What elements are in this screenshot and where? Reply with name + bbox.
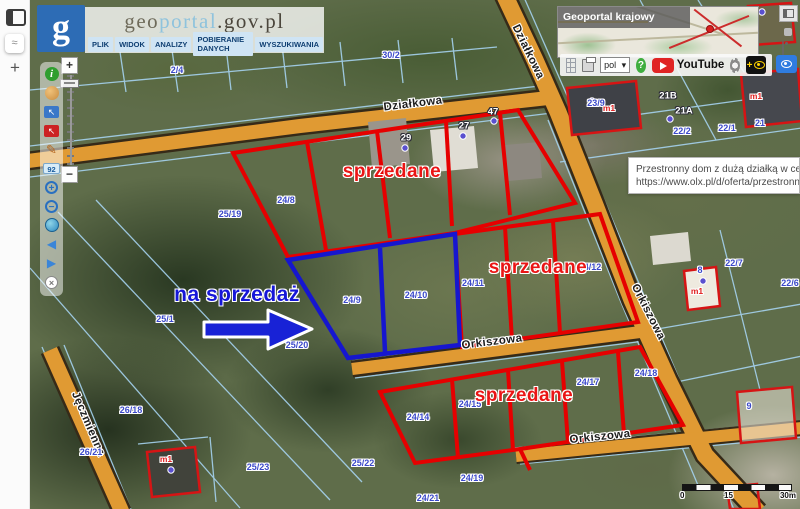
browser-side-rail: ≈ + [0,0,30,509]
menu-item[interactable]: POBIERANIE DANYCH [193,32,253,56]
page-title: geoportal.gov.pl [85,7,324,35]
scale-bar-segments [682,484,792,491]
info-button[interactable]: i [43,66,60,83]
reset-button[interactable]: × [43,274,60,291]
overview-minimap[interactable]: Geoportal krajowy [557,6,759,58]
previous-view-button[interactable]: ◀ [43,236,60,253]
scale-mid: 15 [724,491,733,500]
geoportal-logo[interactable]: g [37,5,85,52]
contrast-eye-icon [754,61,765,69]
chevron-down-icon: ▾ [622,60,627,71]
zoom-out-button[interactable]: − [43,198,60,215]
minimap-marker [706,25,714,33]
scale-bar: 0 15 30m [682,484,792,501]
layer-visibility-button[interactable] [776,55,797,73]
print-icon[interactable] [582,59,594,72]
settings-gear-icon[interactable] [730,58,740,73]
pan-button[interactable] [43,85,60,102]
title-portal: portal [159,9,217,33]
pencil-icon: ✎ [46,142,57,157]
new-tab-button[interactable]: + [7,60,23,76]
zoom-slider-plus[interactable]: + [61,57,78,74]
arrow-left-icon: ◀ [47,237,56,251]
eye-icon [781,60,792,68]
full-extent-button[interactable] [43,217,60,234]
pan-icon [45,86,59,100]
menu-item[interactable]: WYSZUKIWANIA [255,37,323,52]
measure-button[interactable]: ✎ [43,141,60,158]
top-toolbar: pol ▾ ? YouTube + [560,54,772,76]
zoom-in-icon: + [45,181,58,194]
info-icon: i [45,67,59,81]
clear-selection-button[interactable]: ↖ [43,123,60,140]
select-red-icon: ↖ [44,125,59,137]
close-icon: × [45,276,58,289]
zoom-out-icon: − [45,200,58,213]
extension-icon[interactable]: ≈ [5,34,24,53]
youtube-link[interactable]: YouTube [652,58,724,73]
coords-icon: 92 [43,163,60,174]
language-value: pol [604,60,616,70]
select-blue-icon: ↖ [44,106,59,118]
youtube-label: YouTube [677,59,724,71]
geoportal-app: DziałkowaDziałkowaOrkiszowaOrkiszowaOrki… [0,0,800,509]
menu-item[interactable]: PLIK [88,37,113,52]
help-button[interactable]: ? [636,58,646,73]
title-suffix: .gov.pl [217,9,284,33]
map-canvas[interactable] [0,0,800,509]
globe-icon [45,218,59,232]
zoom-in-button[interactable]: + [43,179,60,196]
coordinate-system-button[interactable]: 92 [43,160,60,177]
apps-grid-icon[interactable] [566,58,576,73]
scale-zero: 0 [680,491,684,500]
select-area-button[interactable]: ↖ [43,104,60,121]
offer-url: https://www.olx.pl/d/oferta/przestronny-… [636,176,799,189]
next-view-button[interactable]: ▶ [43,255,60,272]
zoom-slider-minus[interactable]: − [61,166,78,183]
accessibility-contrast-button[interactable]: + [746,56,766,74]
offer-tooltip: Przestronny dom z dużą działką w centrum… [628,157,800,194]
map-toolbar: i ↖ ↖ ✎ 92 + − ◀ ▶ × [40,62,63,296]
title-geo: geo [124,9,159,33]
scale-end: 30m [780,491,796,500]
youtube-icon [652,58,674,73]
arrow-right-icon: ▶ [47,256,56,270]
handle-knob[interactable] [784,28,792,36]
minimap-title: Geoportal krajowy [558,7,690,28]
sidebar-toggle-icon[interactable] [6,9,26,26]
menu-item[interactable]: WIDOK [115,37,149,52]
for-sale-arrow-icon [204,310,312,349]
panel-icon [783,9,794,18]
language-select[interactable]: pol ▾ [600,57,630,73]
offer-title: Przestronny dom z dużą działką w centrum… [636,163,799,176]
menu-item[interactable]: ANALIZY [151,37,192,52]
zoom-slider-track[interactable] [67,75,74,165]
panel-toggle-button[interactable] [779,5,798,22]
contrast-plus-label: + [747,60,753,71]
main-menu: PLIKWIDOKANALIZYPOBIERANIE DANYCHWYSZUKI… [85,35,324,53]
